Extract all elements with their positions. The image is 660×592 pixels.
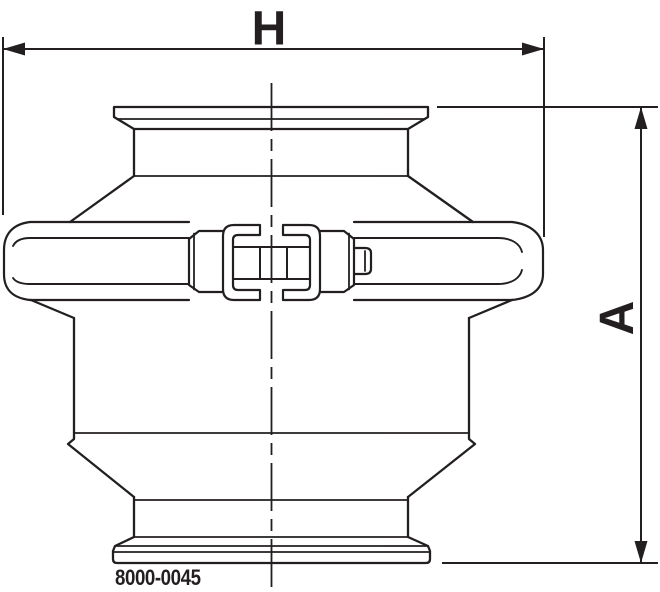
upper-cone-right [408, 176, 473, 222]
body-wall-left [68, 318, 134, 497]
body-wall-right [408, 318, 475, 497]
h-dimension [3, 37, 544, 237]
arrow-up-icon [635, 107, 648, 129]
arrow-left-icon [3, 43, 25, 56]
dim-a-label: A [591, 301, 644, 336]
arrow-right-icon [522, 43, 544, 56]
clamp-assembly [4, 222, 543, 300]
valve-technical-drawing: H A [0, 0, 660, 592]
clamp-bulb-right [512, 222, 543, 300]
upper-cone-left [70, 176, 134, 222]
lower-shoulder-left [31, 300, 74, 318]
clamp-bulb-left [4, 222, 30, 300]
dim-h-label: H [252, 3, 287, 56]
clamp-bracket-right [283, 225, 320, 300]
lower-shoulder-right [469, 300, 512, 318]
arrow-down-icon [635, 541, 648, 563]
clamp-bolt-knob [354, 248, 371, 274]
clamp-bracket-left [223, 225, 260, 300]
part-number-label: 8000-0045 [115, 567, 201, 591]
drawing-canvas: H A [0, 0, 660, 592]
